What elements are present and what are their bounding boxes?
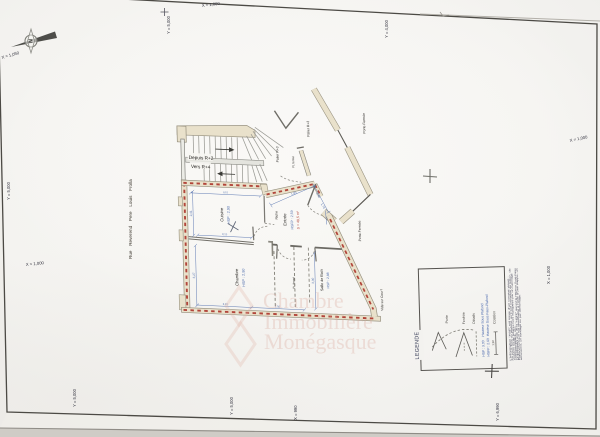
svg-text:PL fermé: PL fermé	[292, 277, 296, 289]
svg-text:HSP : 2,88: HSP : 2,88	[326, 272, 330, 288]
svg-text:3,15: 3,15	[222, 232, 228, 236]
svg-text:S = 48,5 m²: S = 48,5 m²	[296, 210, 300, 229]
svg-text:2,41: 2,41	[189, 210, 193, 216]
svg-text:3,27: 3,27	[192, 272, 196, 278]
svg-text:Niche: Niche	[274, 211, 278, 220]
svg-text:Y = 5,000: Y = 5,000	[72, 388, 77, 407]
svg-text:Entrée: Entrée	[282, 213, 287, 226]
svg-text:1,50: 1,50	[491, 340, 495, 346]
svg-text:HSP : 2,90: HSP : 2,90	[227, 206, 231, 224]
svg-text:X = 1,000: X = 1,000	[546, 265, 551, 284]
svg-text:Monégasque: Monégasque	[264, 329, 376, 354]
svg-text:Y = 4,000: Y = 4,000	[384, 19, 389, 38]
svg-text:Détails: Détails	[472, 313, 476, 324]
svg-text:Palier R+3: Palier R+3	[306, 121, 310, 137]
svg-text:Vide sur Cour?: Vide sur Cour?	[380, 289, 385, 311]
svg-text:HSP : 2,90: HSP : 2,90	[242, 268, 246, 286]
svg-text:Porte: Porte	[445, 315, 449, 324]
svg-text:Cotation: Cotation	[492, 311, 496, 324]
svg-text:PL fermé: PL fermé	[291, 156, 295, 168]
svg-text:Y = 5,000: Y = 5,000	[166, 15, 171, 34]
svg-text:Porte Fermée: Porte Fermée	[358, 220, 363, 241]
svg-text:N: N	[28, 39, 34, 43]
svg-text:HSFP : 2,59: HSFP : 2,59	[290, 210, 294, 229]
svg-text:Palier R+3: Palier R+3	[275, 146, 279, 162]
svg-text:Fenêtre: Fenêtre	[462, 312, 466, 324]
svg-text:Y = 5,000: Y = 5,000	[229, 396, 234, 415]
svg-text:LEGENDE: LEGENDE	[414, 331, 421, 359]
svg-text:Rue Reverend Pere Louis Fr: Rue Reverend Pere Louis Frolla	[128, 179, 133, 259]
svg-text:X = 990: X = 990	[293, 405, 298, 420]
svg-text:Porte Fermée: Porte Fermée	[362, 113, 367, 134]
svg-text:Vers R+4: Vers R+4	[191, 164, 211, 170]
svg-text:3,30: 3,30	[311, 277, 315, 283]
svg-text:Cuisine: Cuisine	[219, 207, 224, 222]
svg-text:Y = 5,000: Y = 5,000	[6, 181, 11, 200]
svg-text:3,51: 3,51	[223, 190, 229, 194]
svg-text:Y = 6,990: Y = 6,990	[495, 402, 500, 421]
svg-text:Chambre: Chambre	[234, 268, 239, 286]
